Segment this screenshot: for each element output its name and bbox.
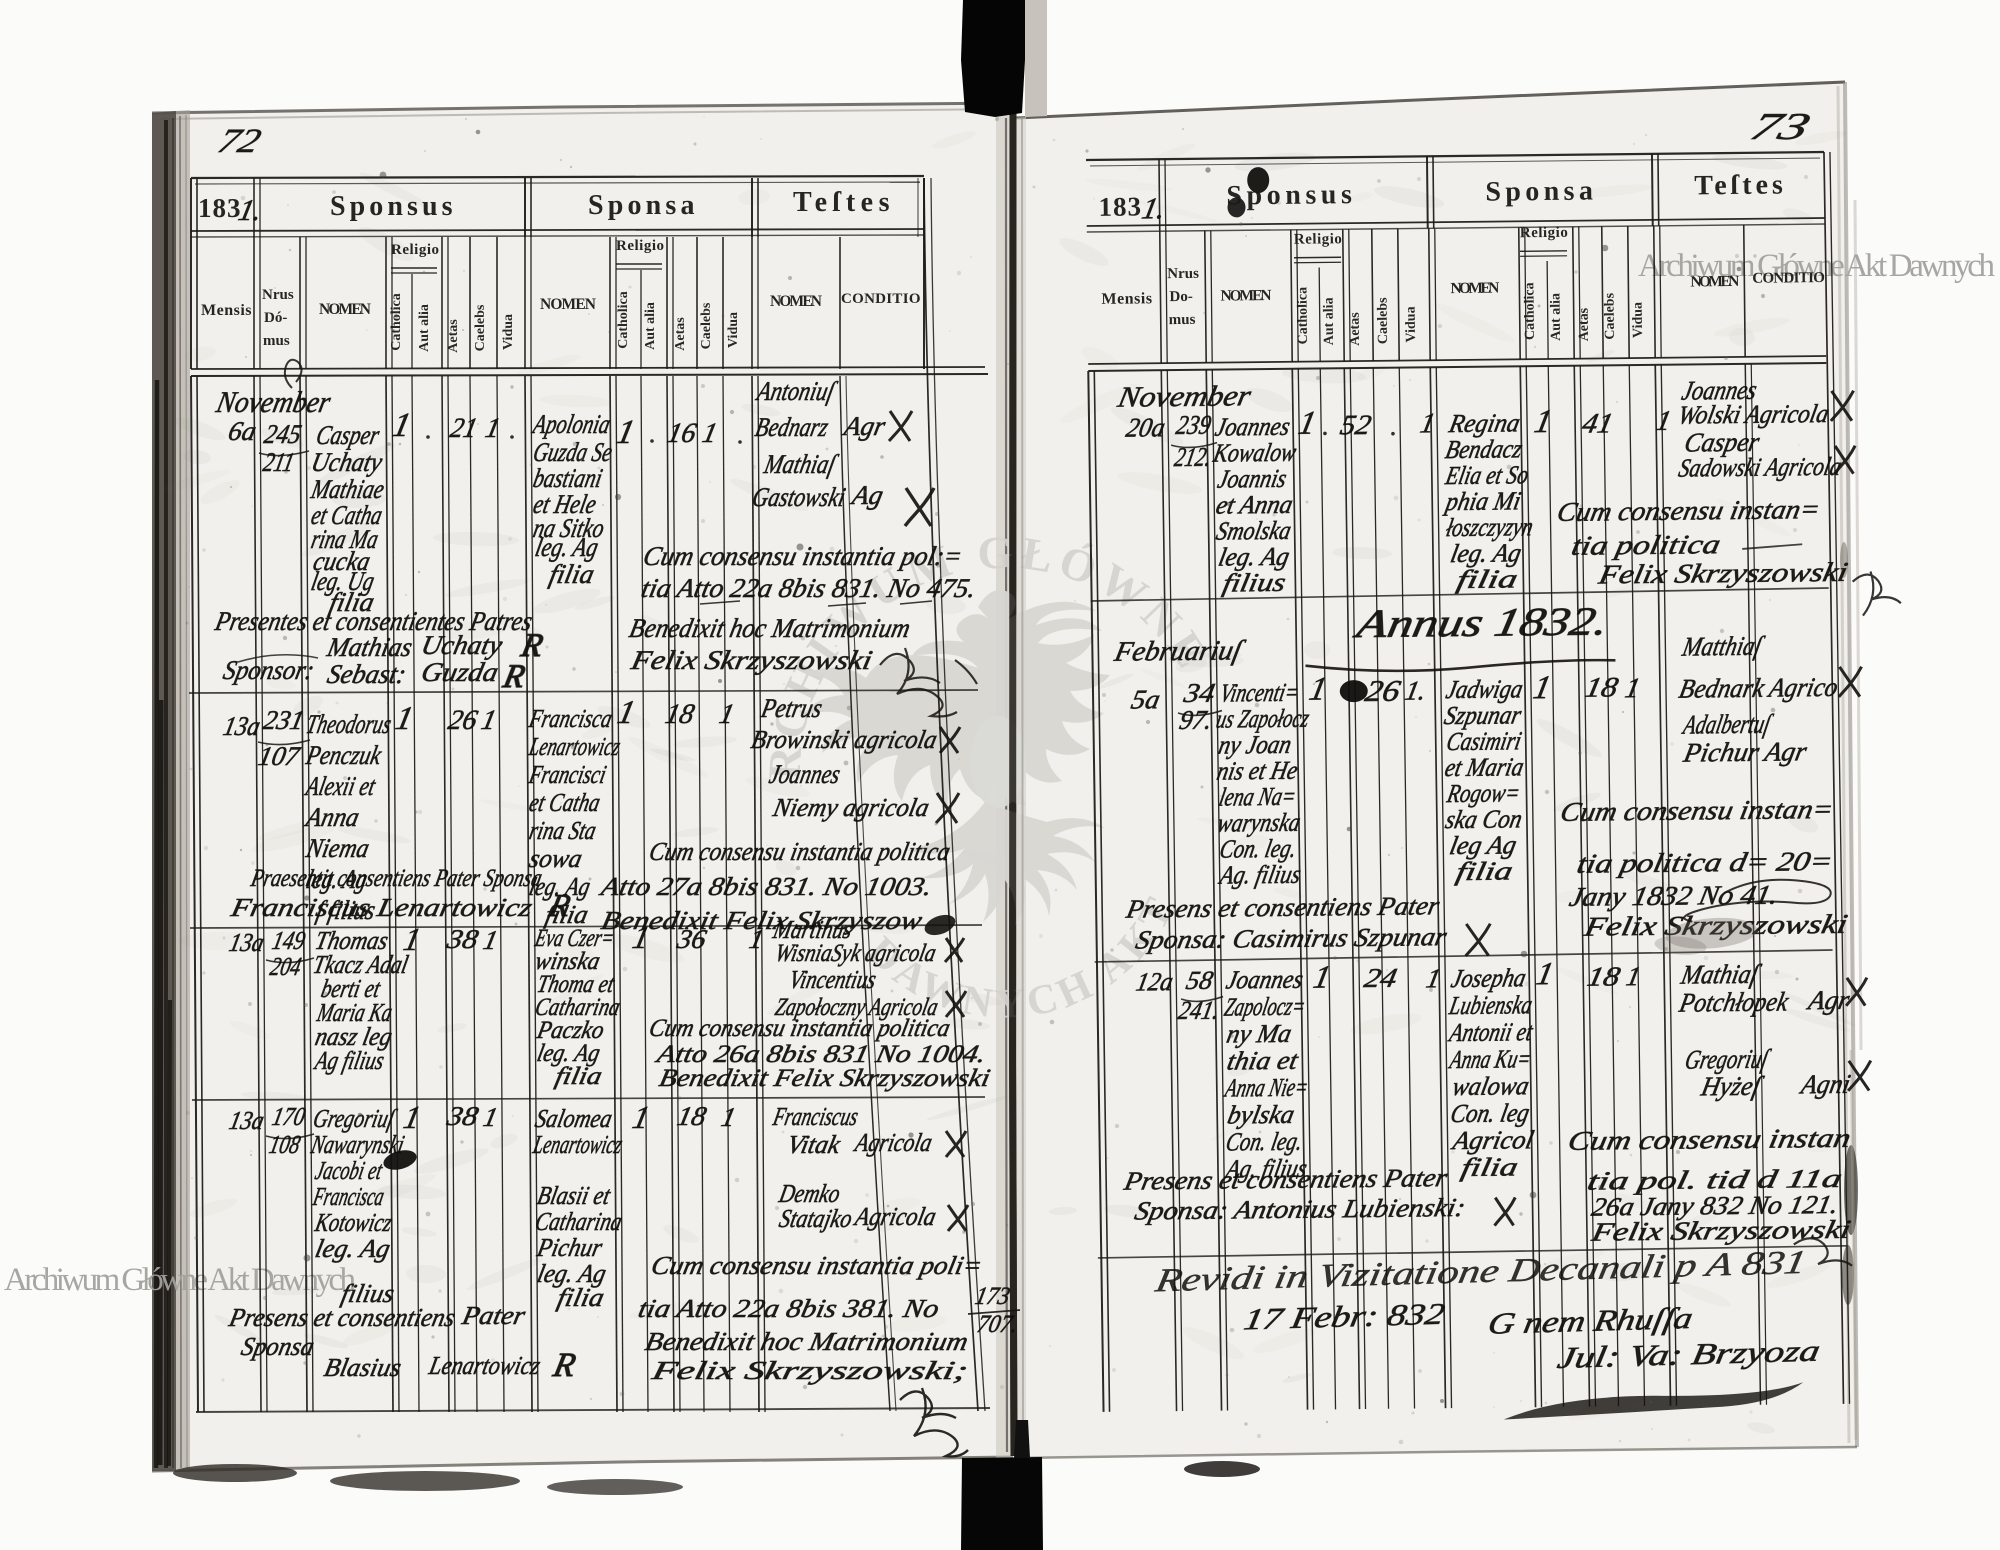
svg-text:Uchaty: Uchaty — [419, 630, 506, 660]
svg-text:CONDITIO: CONDITIO — [1752, 270, 1825, 287]
svg-text:Bednark Agrico: Bednark Agrico — [1677, 672, 1841, 703]
svg-text:Casimiri: Casimiri — [1444, 727, 1524, 757]
svg-text:Jadwiga: Jadwiga — [1444, 675, 1526, 705]
svg-text:Mathiaſ: Mathiaſ — [761, 449, 841, 479]
svg-text:707.: 707. — [975, 1310, 1021, 1338]
svg-text:13a: 13a — [227, 1106, 267, 1135]
svg-text:NOMEN: NOMEN — [319, 301, 372, 318]
svg-text:Cum consensu instantia poli=: Cum consensu instantia poli= — [649, 1251, 985, 1280]
svg-text:239: 239 — [1174, 410, 1214, 440]
svg-text:204: 204 — [268, 952, 304, 981]
svg-text:Caelebs: Caelebs — [1602, 292, 1618, 339]
svg-text:tia Atto 22a 8bis 831. No 475.: tia Atto 22a 8bis 831. No 475. — [639, 573, 979, 603]
svg-text:NOMEN: NOMEN — [770, 293, 823, 310]
svg-text:et Catha: et Catha — [527, 788, 603, 817]
svg-text:bylska: bylska — [1225, 1100, 1297, 1129]
svg-text:Potchłopek: Potchłopek — [1676, 987, 1792, 1018]
svg-text:Mathias: Mathias — [324, 632, 415, 662]
svg-text:Aetas: Aetas — [1577, 307, 1592, 341]
svg-text:Mathiaſ: Mathiaſ — [1678, 959, 1764, 990]
svg-text:Sponsa: Sponsa — [588, 190, 701, 221]
svg-text:Aetas: Aetas — [673, 317, 688, 351]
svg-text:Sponsus: Sponsus — [330, 191, 460, 222]
svg-text:filia: filia — [547, 559, 597, 589]
svg-text:Szpunar: Szpunar — [1442, 701, 1524, 731]
svg-text:Dó-: Dó- — [264, 310, 287, 326]
svg-text:Agni: Agni — [1797, 1069, 1853, 1099]
svg-text:Agricola: Agricola — [851, 1202, 939, 1231]
svg-text:Hyżeſ: Hyżeſ — [1698, 1071, 1766, 1101]
svg-text:Francisca: Francisca — [526, 704, 615, 733]
svg-text:Annus 1832.: Annus 1832. — [1350, 599, 1613, 646]
svg-text:Jany 1832 No 41.: Jany 1832 No 41. — [1567, 880, 1781, 912]
svg-text:Religio: Religio — [1520, 225, 1569, 242]
svg-text:Joannes: Joannes — [1213, 412, 1293, 442]
svg-text:Mensis: Mensis — [201, 302, 252, 319]
svg-text:34: 34 — [1181, 678, 1218, 708]
svg-text:filius: filius — [1220, 568, 1288, 597]
svg-text:Aut alia: Aut alia — [1322, 297, 1338, 345]
svg-text:Kotowicz: Kotowicz — [312, 1208, 395, 1237]
svg-text:Aut alia: Aut alia — [643, 302, 658, 350]
svg-text:Felix Skrzyszowski: Felix Skrzyszowski — [1588, 1215, 1853, 1247]
svg-text:NOMEN: NOMEN — [1450, 280, 1500, 298]
svg-text:Jacobi et: Jacobi et — [313, 1156, 386, 1185]
svg-text:241.: 241. — [1176, 996, 1222, 1025]
svg-text:tia politica d= 20=: tia politica d= 20= — [1575, 846, 1836, 878]
svg-text:Penczuk: Penczuk — [303, 740, 385, 770]
svg-text:Catholica: Catholica — [1522, 282, 1538, 340]
svg-text:Lenartowicz: Lenartowicz — [530, 1130, 625, 1159]
svg-text:tia Atto 22a 8bis 381. No: tia Atto 22a 8bis 381. No — [636, 1294, 942, 1323]
svg-text:filia: filia — [555, 1283, 607, 1312]
svg-text:Salomea: Salomea — [533, 1104, 615, 1133]
svg-text:Cum consensu instantia politic: Cum consensu instantia politica — [647, 1014, 953, 1042]
svg-text:CONDITIO: CONDITIO — [841, 291, 921, 307]
svg-text:leg. Ag: leg. Ag — [313, 1234, 393, 1263]
svg-text:Aetas: Aetas — [446, 319, 461, 353]
svg-text:leg. Ag: leg. Ag — [1216, 542, 1292, 571]
svg-text:108: 108 — [267, 1130, 303, 1159]
svg-text:183: 183 — [1098, 191, 1142, 221]
svg-text:us Zapołocz: us Zapołocz — [1214, 704, 1312, 734]
svg-text:Vitak: Vitak — [785, 1130, 844, 1159]
svg-text:97.: 97. — [1177, 705, 1215, 735]
svg-text:Atto 27a 8bis 831. No 1003.: Atto 27a 8bis 831. No 1003. — [597, 872, 935, 901]
svg-text:NOMEN: NOMEN — [1690, 273, 1740, 291]
svg-text:G nem Rhuſſa: G nem Rhuſſa — [1485, 1301, 1695, 1341]
svg-text:Franciscus: Franciscus — [770, 1102, 861, 1131]
svg-text:November: November — [1114, 380, 1254, 413]
svg-text:Statajko: Statajko — [777, 1204, 855, 1233]
svg-text:Niemy agricola: Niemy agricola — [770, 793, 932, 822]
svg-text:149: 149 — [270, 926, 308, 955]
svg-text:Rogow=: Rogow= — [1444, 779, 1523, 809]
svg-text:Vidua: Vidua — [501, 314, 516, 350]
svg-text:NOMEN: NOMEN — [1220, 287, 1272, 305]
svg-text:Februariuſ: Februariuſ — [1111, 636, 1248, 668]
svg-text:Gregoriuſ: Gregoriuſ — [311, 1104, 400, 1133]
svg-text:Agr: Agr — [840, 411, 889, 441]
svg-text:Anna: Anna — [302, 802, 362, 832]
svg-text:WisniaSyk agricola: WisniaSyk agricola — [773, 939, 939, 967]
svg-text:Sponsa: Antonius Lubienski:: Sponsa: Antonius Lubienski: — [1132, 1193, 1468, 1225]
svg-text:lena Na=: lena Na= — [1217, 782, 1299, 812]
svg-text:Teſtes: Teſtes — [793, 187, 896, 218]
svg-text:Theodorus: Theodorus — [304, 709, 394, 739]
svg-text:Blasii et: Blasii et — [535, 1181, 614, 1210]
svg-text:Agricol: Agricol — [1448, 1125, 1536, 1155]
svg-text:Adalbertuſ: Adalbertuſ — [1680, 709, 1776, 740]
svg-text:Mensis: Mensis — [1101, 290, 1152, 308]
svg-text:Ag. filius: Ag. filius — [1216, 860, 1303, 890]
svg-text:170: 170 — [270, 1102, 308, 1131]
svg-text:Antonii et: Antonii et — [1446, 1017, 1536, 1047]
svg-text:November: November — [213, 385, 334, 419]
svg-text:Joannes: Joannes — [1224, 965, 1306, 995]
svg-text:Vidua: Vidua — [1631, 302, 1646, 338]
svg-text:Bendacz: Bendacz — [1443, 435, 1525, 465]
svg-text:Presens et consentiens: Presens et consentiens — [226, 1303, 458, 1332]
svg-text:231: 231 — [261, 705, 307, 735]
svg-text:rina Sta: rina Sta — [527, 816, 599, 845]
svg-text:Felix Skrzyszowski: Felix Skrzyszowski — [1595, 557, 1850, 589]
svg-text:Agricola: Agricola — [851, 1128, 935, 1157]
svg-text:Pichur Agr: Pichur Agr — [1680, 736, 1809, 767]
svg-text:17 Febr: 832: 17 Febr: 832 — [1241, 1297, 1447, 1336]
svg-text:Wolski Agricola: Wolski Agricola — [1676, 399, 1832, 429]
svg-text:Religio: Religio — [1294, 231, 1343, 248]
svg-text:Felix Skrzyszowski: Felix Skrzyszowski — [628, 645, 875, 675]
svg-text:Sponsor:: Sponsor: — [221, 655, 317, 685]
svg-text:Cum consensu instan=: Cum consensu instan= — [1555, 494, 1823, 527]
svg-text:Francisca: Francisca — [310, 1182, 387, 1211]
svg-text:Alexii et: Alexii et — [302, 771, 379, 801]
svg-text:Cum consensu instan: Cum consensu instan — [1566, 1123, 1854, 1156]
svg-text:Catharina: Catharina — [533, 1207, 625, 1236]
svg-text:Smolska: Smolska — [1214, 516, 1294, 546]
svg-text:Apolonia: Apolonia — [529, 409, 613, 439]
svg-text:20a: 20a — [1124, 412, 1168, 442]
svg-text:Antoniuſ: Antoniuſ — [753, 376, 840, 406]
svg-text:107: 107 — [256, 741, 304, 771]
svg-text:Religio: Religio — [391, 242, 440, 258]
svg-text:Blasius: Blasius — [322, 1353, 404, 1382]
svg-text:18: 18 — [1585, 962, 1623, 992]
svg-text:Joannis: Joannis — [1215, 464, 1289, 493]
svg-text:Vidua: Vidua — [726, 312, 741, 348]
svg-text:Pichur: Pichur — [534, 1233, 606, 1262]
svg-text:phia Mi: phia Mi — [1442, 487, 1524, 517]
svg-text:Caelebs: Caelebs — [473, 304, 488, 351]
svg-text:Matthiaſ: Matthiaſ — [1679, 631, 1767, 662]
svg-text:Guzda: Guzda — [419, 657, 501, 687]
svg-text:leg Ag: leg Ag — [1447, 831, 1519, 860]
svg-text:Con. leg.: Con. leg. — [1224, 1127, 1306, 1157]
svg-text:Do-: Do- — [1169, 289, 1193, 305]
svg-text:thia et: thia et — [1225, 1046, 1302, 1076]
svg-text:Niema: Niema — [303, 833, 372, 863]
svg-text:245: 245 — [262, 419, 304, 449]
svg-text:24: 24 — [1362, 963, 1400, 993]
svg-text:NOMEN: NOMEN — [540, 296, 597, 313]
svg-text:Lenartowicz: Lenartowicz — [426, 1351, 543, 1380]
svg-text:ska Con: ska Con — [1443, 805, 1525, 835]
svg-text:Aut alia: Aut alia — [1548, 293, 1564, 341]
svg-text:Sponsa: Sponsa — [1485, 175, 1599, 207]
svg-text:183: 183 — [198, 193, 242, 223]
svg-text:Catholica: Catholica — [389, 293, 404, 351]
svg-text:Caelebs: Caelebs — [1375, 297, 1391, 344]
svg-text:Joannes: Joannes — [767, 759, 843, 789]
svg-text:41: 41 — [1580, 409, 1616, 440]
svg-text:filia: filia — [1454, 857, 1516, 886]
svg-text:Vincentius: Vincentius — [787, 965, 879, 994]
svg-text:Catholica: Catholica — [1295, 287, 1311, 345]
svg-text:Felix Skrzyszowski;: Felix Skrzyszowski; — [648, 1356, 971, 1385]
svg-text:173: 173 — [973, 1282, 1013, 1310]
svg-text:Pater: Pater — [459, 1301, 529, 1330]
svg-text:Ag filius: Ag filius — [311, 1046, 387, 1075]
svg-text:Sponsa: Casimirus Szpunar: Sponsa: Casimirus Szpunar — [1133, 922, 1450, 954]
svg-text:Zapolocz=: Zapolocz= — [1222, 992, 1308, 1022]
svg-text:et Anna: et Anna — [1214, 490, 1296, 520]
svg-text:Josepha: Josepha — [1449, 964, 1529, 994]
svg-text:Benedixit hoc Matrimonium: Benedixit hoc Matrimonium — [643, 1327, 971, 1356]
svg-text:Catholica: Catholica — [616, 291, 631, 349]
svg-text:Petrus: Petrus — [758, 693, 825, 723]
svg-text:Presens et consentiens Pater: Presens et consentiens Pater — [1121, 1163, 1451, 1195]
svg-text:Agr: Agr — [1804, 985, 1852, 1015]
svg-text:Browinski agricola: Browinski agricola — [749, 725, 940, 754]
svg-text:13a: 13a — [221, 711, 263, 741]
svg-text:Bednarz: Bednarz — [753, 412, 832, 442]
svg-text:Gastowski: Gastowski — [750, 482, 848, 512]
svg-text:Francisci: Francisci — [526, 760, 609, 789]
svg-text:Nawarynski: Nawarynski — [308, 1130, 407, 1159]
svg-text:Archiwum Główne Akt Dawnych: Archiwum Główne Akt Dawnych — [4, 1262, 356, 1298]
svg-text:Cum consensu instantia politic: Cum consensu instantia politica — [647, 837, 953, 866]
svg-text:Praesentit consentiens Pater S: Praesentit consentiens Pater Sponsa — [248, 864, 545, 892]
svg-text:Anna Nie=: Anna Nie= — [1222, 1073, 1311, 1103]
svg-text:12a: 12a — [1134, 967, 1176, 996]
svg-text:leg. Ag: leg. Ag — [1448, 539, 1524, 568]
svg-text:212.: 212. — [1172, 442, 1214, 472]
svg-text:Casper: Casper — [314, 420, 383, 450]
svg-text:filia: filia — [553, 1062, 605, 1090]
svg-text:Con. leg: Con. leg — [1448, 1098, 1532, 1128]
svg-text:filia: filia — [1459, 1153, 1521, 1182]
svg-text:Caelebs: Caelebs — [699, 302, 714, 349]
svg-text:Franciscus Lenartowicz: Franciscus Lenartowicz — [228, 893, 535, 922]
svg-text:Sebast:: Sebast: — [325, 659, 409, 689]
svg-text:13a: 13a — [227, 928, 267, 957]
svg-text:Regina: Regina — [1446, 409, 1523, 439]
svg-text:tia politica: tia politica — [1569, 529, 1723, 560]
svg-text:Religio: Religio — [616, 238, 665, 254]
svg-text:Vidua: Vidua — [1404, 306, 1419, 342]
svg-text:Nrus: Nrus — [1167, 266, 1199, 282]
svg-text:18: 18 — [1582, 673, 1620, 704]
svg-text:walowa: walowa — [1450, 1071, 1532, 1101]
svg-text:Aut alia: Aut alia — [417, 304, 432, 352]
svg-text:Nrus: Nrus — [262, 287, 294, 303]
svg-text:52: 52 — [1338, 410, 1374, 441]
svg-text:Lubienska: Lubienska — [1446, 990, 1535, 1020]
svg-text:Sponsa: Sponsa — [239, 1332, 317, 1361]
svg-text:leg. Ag: leg. Ag — [533, 532, 601, 562]
svg-text:Presens et consentiens Pater: Presens et consentiens Pater — [1123, 891, 1443, 923]
svg-text:Sadowski Agricola: Sadowski Agricola — [1676, 452, 1844, 482]
svg-text:211: 211 — [261, 447, 297, 477]
svg-text:mus: mus — [263, 333, 290, 349]
svg-text:Con. leg.: Con. leg. — [1217, 834, 1299, 864]
svg-text:mus: mus — [1169, 312, 1196, 328]
svg-text:Benedixit hoc Matrimonium: Benedixit hoc Matrimonium — [627, 613, 913, 643]
svg-text:Aetas: Aetas — [1348, 312, 1363, 346]
svg-text:Benedixit Felix Skrzyszowski: Benedixit Felix Skrzyszowski — [657, 1064, 993, 1092]
svg-text:ny Ma: ny Ma — [1224, 1019, 1294, 1048]
svg-text:filia: filia — [1454, 565, 1520, 594]
svg-text:ny Joan: ny Joan — [1216, 730, 1294, 760]
svg-text:Anna Ku=: Anna Ku= — [1446, 1044, 1533, 1074]
svg-text:Uchaty: Uchaty — [309, 447, 386, 477]
svg-text:Sponsus: Sponsus — [1226, 179, 1359, 211]
svg-text:Gregoriuſ: Gregoriuſ — [1683, 1044, 1774, 1075]
svg-text:Teſtes: Teſtes — [1694, 169, 1789, 201]
svg-text:Cum consensu instan=: Cum consensu instan= — [1558, 794, 1836, 827]
